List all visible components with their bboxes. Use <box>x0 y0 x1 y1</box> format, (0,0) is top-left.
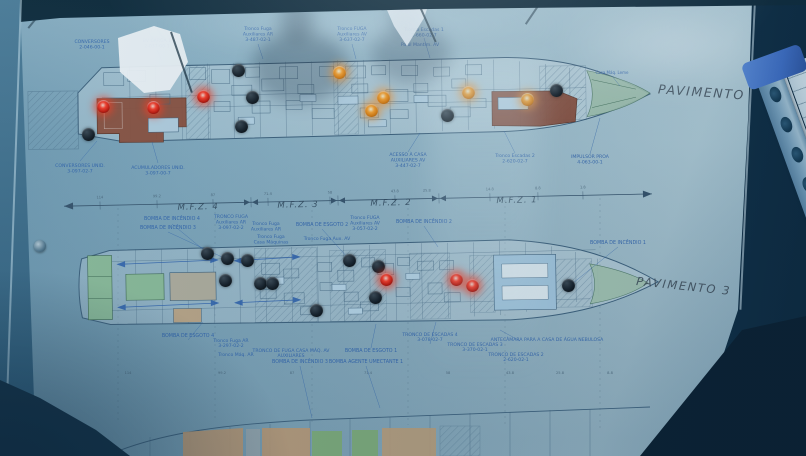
status-led-red <box>147 101 160 114</box>
status-led-off <box>82 128 95 141</box>
status-led-red <box>380 273 393 286</box>
status-led-red <box>197 90 210 103</box>
status-led-off <box>219 274 232 287</box>
status-led-amber <box>377 91 390 104</box>
status-led-off <box>241 254 254 267</box>
mimic-panel-photo: M.F.Z. 4M.F.Z. 3M.F.Z. 2M.F.Z. 111499.28… <box>0 0 806 456</box>
status-led-off <box>246 91 259 104</box>
status-led-off <box>310 304 323 317</box>
frame-screw <box>34 240 46 252</box>
status-led-amber <box>333 66 346 79</box>
status-led-off <box>232 64 245 77</box>
status-led-off <box>201 247 214 260</box>
status-led-off <box>372 260 385 273</box>
status-led-amber <box>365 104 378 117</box>
status-led-off <box>254 277 267 290</box>
status-led-off <box>369 291 382 304</box>
glass-sheen <box>150 0 570 50</box>
status-led-off <box>221 252 234 265</box>
status-led-off <box>266 277 279 290</box>
status-led-off <box>343 254 356 267</box>
status-led-red <box>97 100 110 113</box>
glass-sheen <box>430 60 540 380</box>
status-led-off <box>235 120 248 133</box>
status-led-off <box>562 279 575 292</box>
